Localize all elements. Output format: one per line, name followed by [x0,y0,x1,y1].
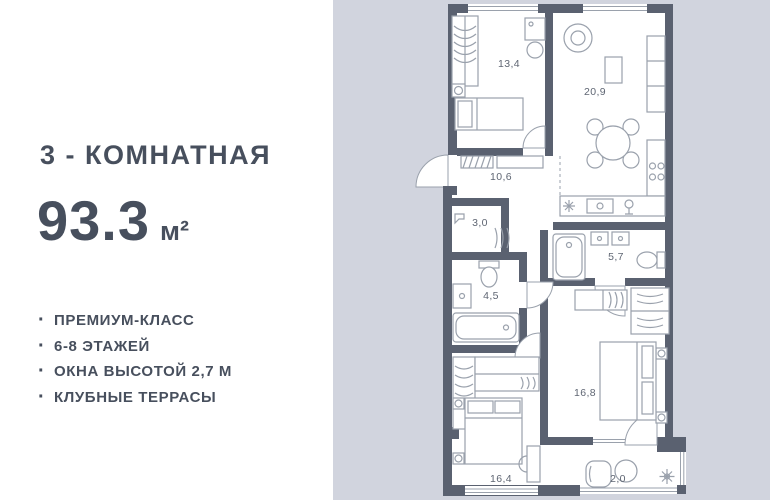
feature-item: ·КЛУБНЫЕ ТЕРРАСЫ [38,385,232,411]
sink-icon [453,284,471,308]
apartment-slide: 3 - КОМНАТНАЯ 93.3 м² ·ПРЕМИУМ-КЛАСС ·6-… [0,0,770,500]
room-label-bedroom-top: 13,4 [498,58,520,70]
room-label-bedroom-bottom: 16,4 [490,473,512,485]
sofa-icon [647,36,665,112]
info-panel: 3 - КОМНАТНАЯ 93.3 м² ·ПРЕМИУМ-КЛАСС ·6-… [0,0,333,500]
doors [416,155,448,187]
toilet-icon [657,252,665,268]
feature-label: 6-8 ЭТАЖЕЙ [54,338,150,355]
bullet-dot: · [38,335,54,358]
desk-icon [527,446,540,482]
hallway-furniture [461,156,543,168]
features-list: ·ПРЕМИУМ-КЛАСС ·6-8 ЭТАЖЕЙ ·ОКНА ВЫСОТОЙ… [38,308,232,410]
feature-label: ПРЕМИУМ-КЛАСС [54,312,195,329]
total-area: 93.3 м² [37,188,189,253]
room-label-hallway: 10,6 [490,171,512,183]
room-label-bedroom-right: 16,8 [574,387,596,399]
apartment-type-title: 3 - КОМНАТНАЯ [40,140,271,171]
sink-icon [612,232,629,245]
feature-label: КЛУБНЫЕ ТЕРРАСЫ [54,389,216,406]
area-value: 93.3 [37,188,150,253]
dining-table-icon [596,126,630,160]
feature-item: ·ПРЕМИУМ-КЛАСС [38,308,232,334]
room-label-closet: 3,0 [472,217,488,229]
bullet-dot: · [38,360,54,383]
coffee-table-icon [605,57,622,83]
bench-icon [497,156,543,168]
bullet-dot: · [38,386,54,409]
chair-icon [527,42,543,58]
desk-icon [525,18,545,40]
floor-plan: 13,4 20,9 10,6 3,0 4,5 5,7 16,8 16,4 2,0 [410,0,690,500]
sink-icon [587,199,613,213]
sink-icon [591,232,608,245]
shelf-icon [575,290,627,310]
room-label-balcony: 2,0 [610,473,626,485]
feature-item: ·ОКНА ВЫСОТОЙ 2,7 М [38,359,232,385]
entrance-door-icon [416,155,448,187]
area-unit: м² [160,216,189,247]
room-label-living-kitchen: 20,9 [584,86,606,98]
feature-item: ·6-8 ЭТАЖЕЙ [38,334,232,360]
bathtub-icon [453,313,519,342]
room-label-bathroom-small: 4,5 [483,290,499,302]
bullet-dot: · [38,309,54,332]
armchair-icon [564,24,592,52]
room-label-bathroom-large: 5,7 [608,251,624,263]
feature-label: ОКНА ВЫСОТОЙ 2,7 М [54,363,232,380]
